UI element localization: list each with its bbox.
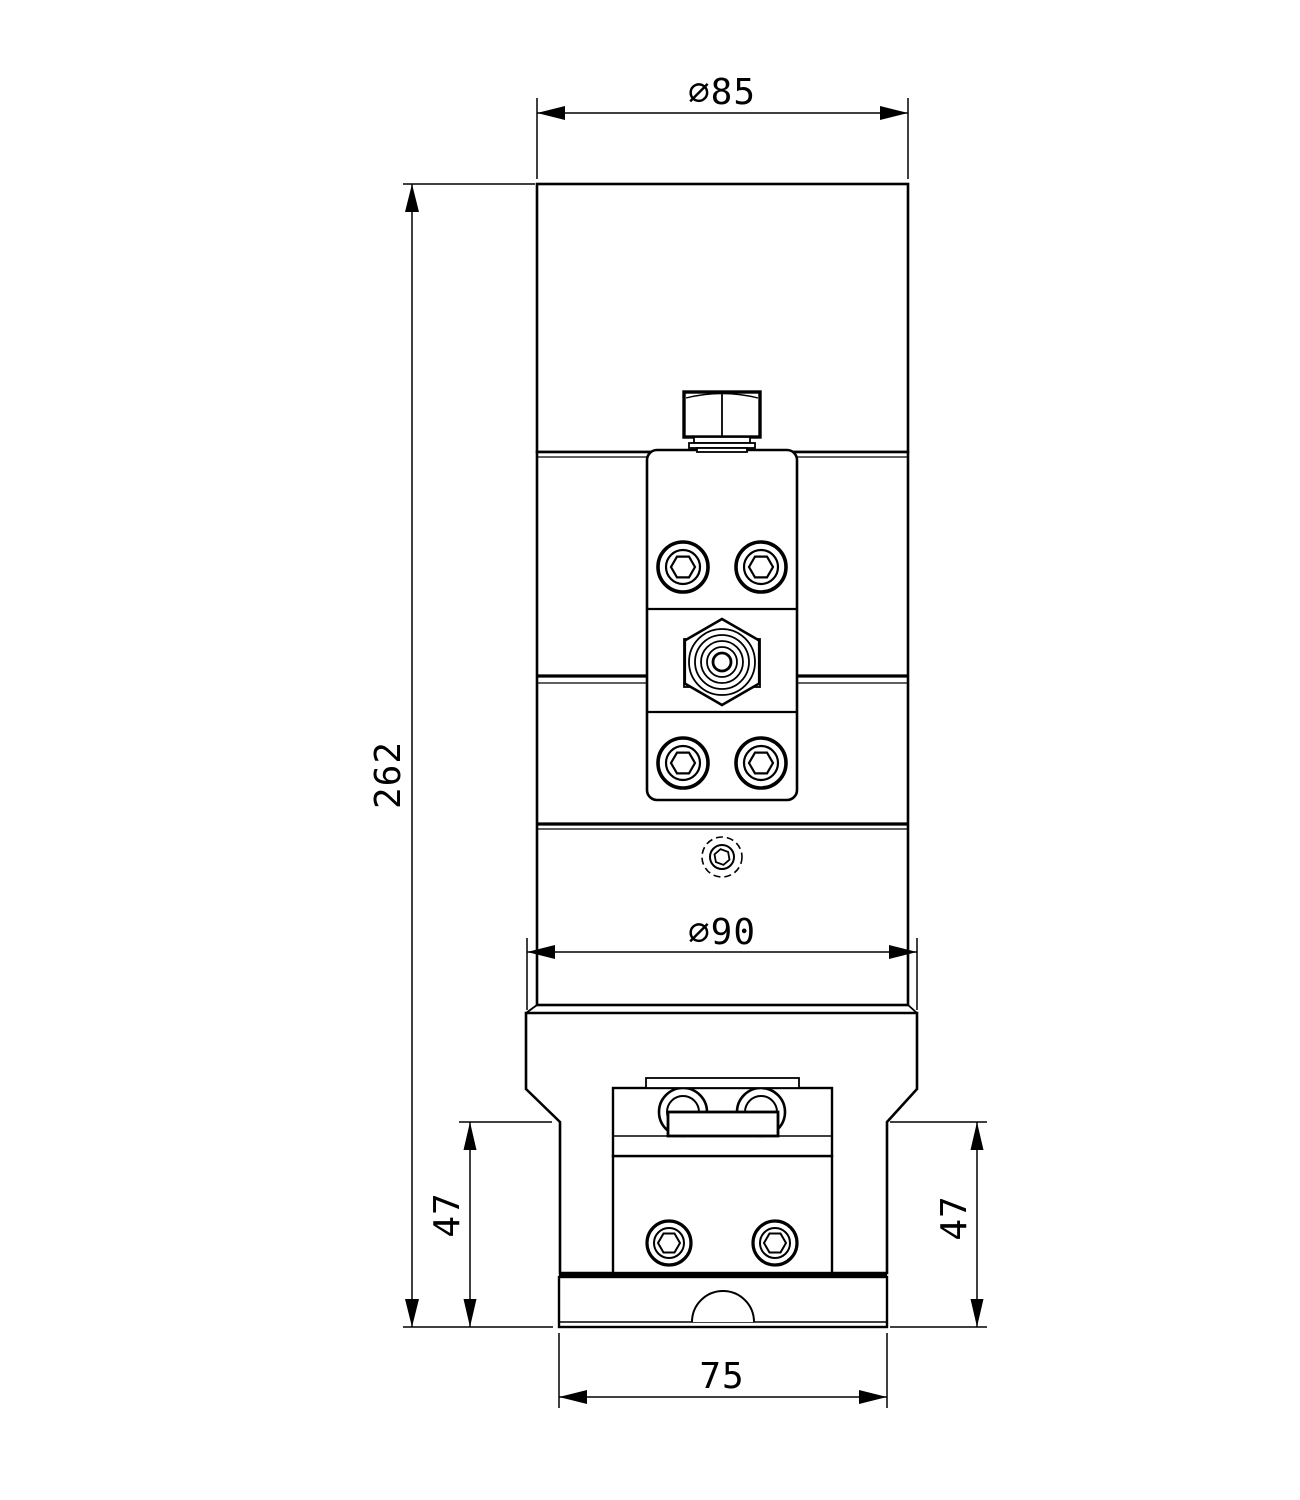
arrowhead bbox=[559, 1390, 587, 1404]
dim-height-47-right: 47 bbox=[890, 1122, 987, 1327]
dim-diameter-85-label: ∅85 bbox=[688, 72, 756, 113]
arrowhead bbox=[405, 1299, 419, 1327]
dim-height-47-right-label: 47 bbox=[934, 1195, 975, 1240]
clevis-crossbar bbox=[668, 1112, 778, 1136]
arrowhead bbox=[464, 1299, 477, 1327]
clamp-top-plate bbox=[646, 1078, 799, 1088]
arrowhead bbox=[405, 184, 419, 212]
arrowhead bbox=[971, 1122, 984, 1150]
arrowhead bbox=[859, 1390, 887, 1404]
arrowhead bbox=[880, 106, 908, 120]
arrowhead bbox=[537, 106, 565, 120]
dim-width-75: 75 bbox=[559, 1333, 887, 1408]
dim-height-262-label: 262 bbox=[368, 741, 409, 809]
dim-diameter-85: ∅85 bbox=[537, 72, 908, 179]
dim-height-47-left: 47 bbox=[427, 1122, 552, 1327]
valve-manifold bbox=[647, 392, 797, 800]
arrowhead bbox=[971, 1299, 984, 1327]
clamp-lower-block bbox=[613, 1156, 832, 1273]
hex-nut bbox=[684, 392, 760, 437]
clamp-bracket bbox=[613, 1078, 832, 1273]
dim-height-47-left-label: 47 bbox=[427, 1192, 468, 1237]
arrowhead bbox=[464, 1122, 477, 1150]
dim-diameter-90-label: ∅90 bbox=[688, 912, 756, 953]
part-outline bbox=[526, 184, 917, 1327]
dim-height-262: 262 bbox=[368, 184, 553, 1327]
nut-collar bbox=[689, 437, 755, 452]
engineering-drawing: ∅85 262 ∅90 47 bbox=[0, 0, 1300, 1500]
engineering-drawing-canvas: ∅85 262 ∅90 47 bbox=[0, 0, 1300, 1500]
dim-width-75-label: 75 bbox=[699, 1356, 744, 1397]
